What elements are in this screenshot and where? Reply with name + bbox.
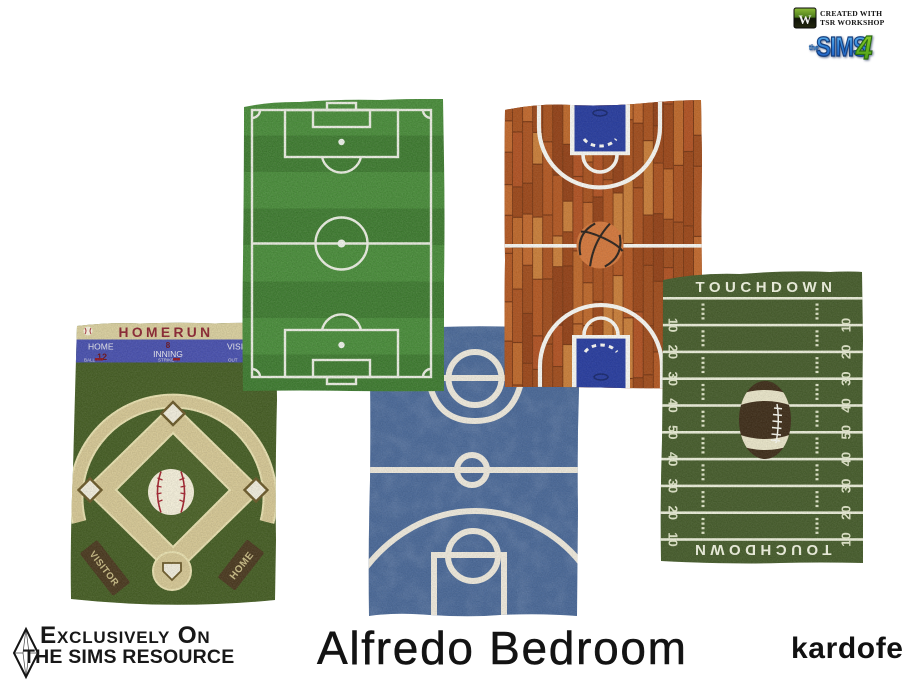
svg-text:W: W: [799, 12, 812, 27]
svg-text:CREATED WITH: CREATED WITH: [820, 9, 882, 18]
svg-text:TSR WORKSHOP: TSR WORKSHOP: [820, 18, 885, 27]
svg-text:4: 4: [855, 30, 872, 67]
